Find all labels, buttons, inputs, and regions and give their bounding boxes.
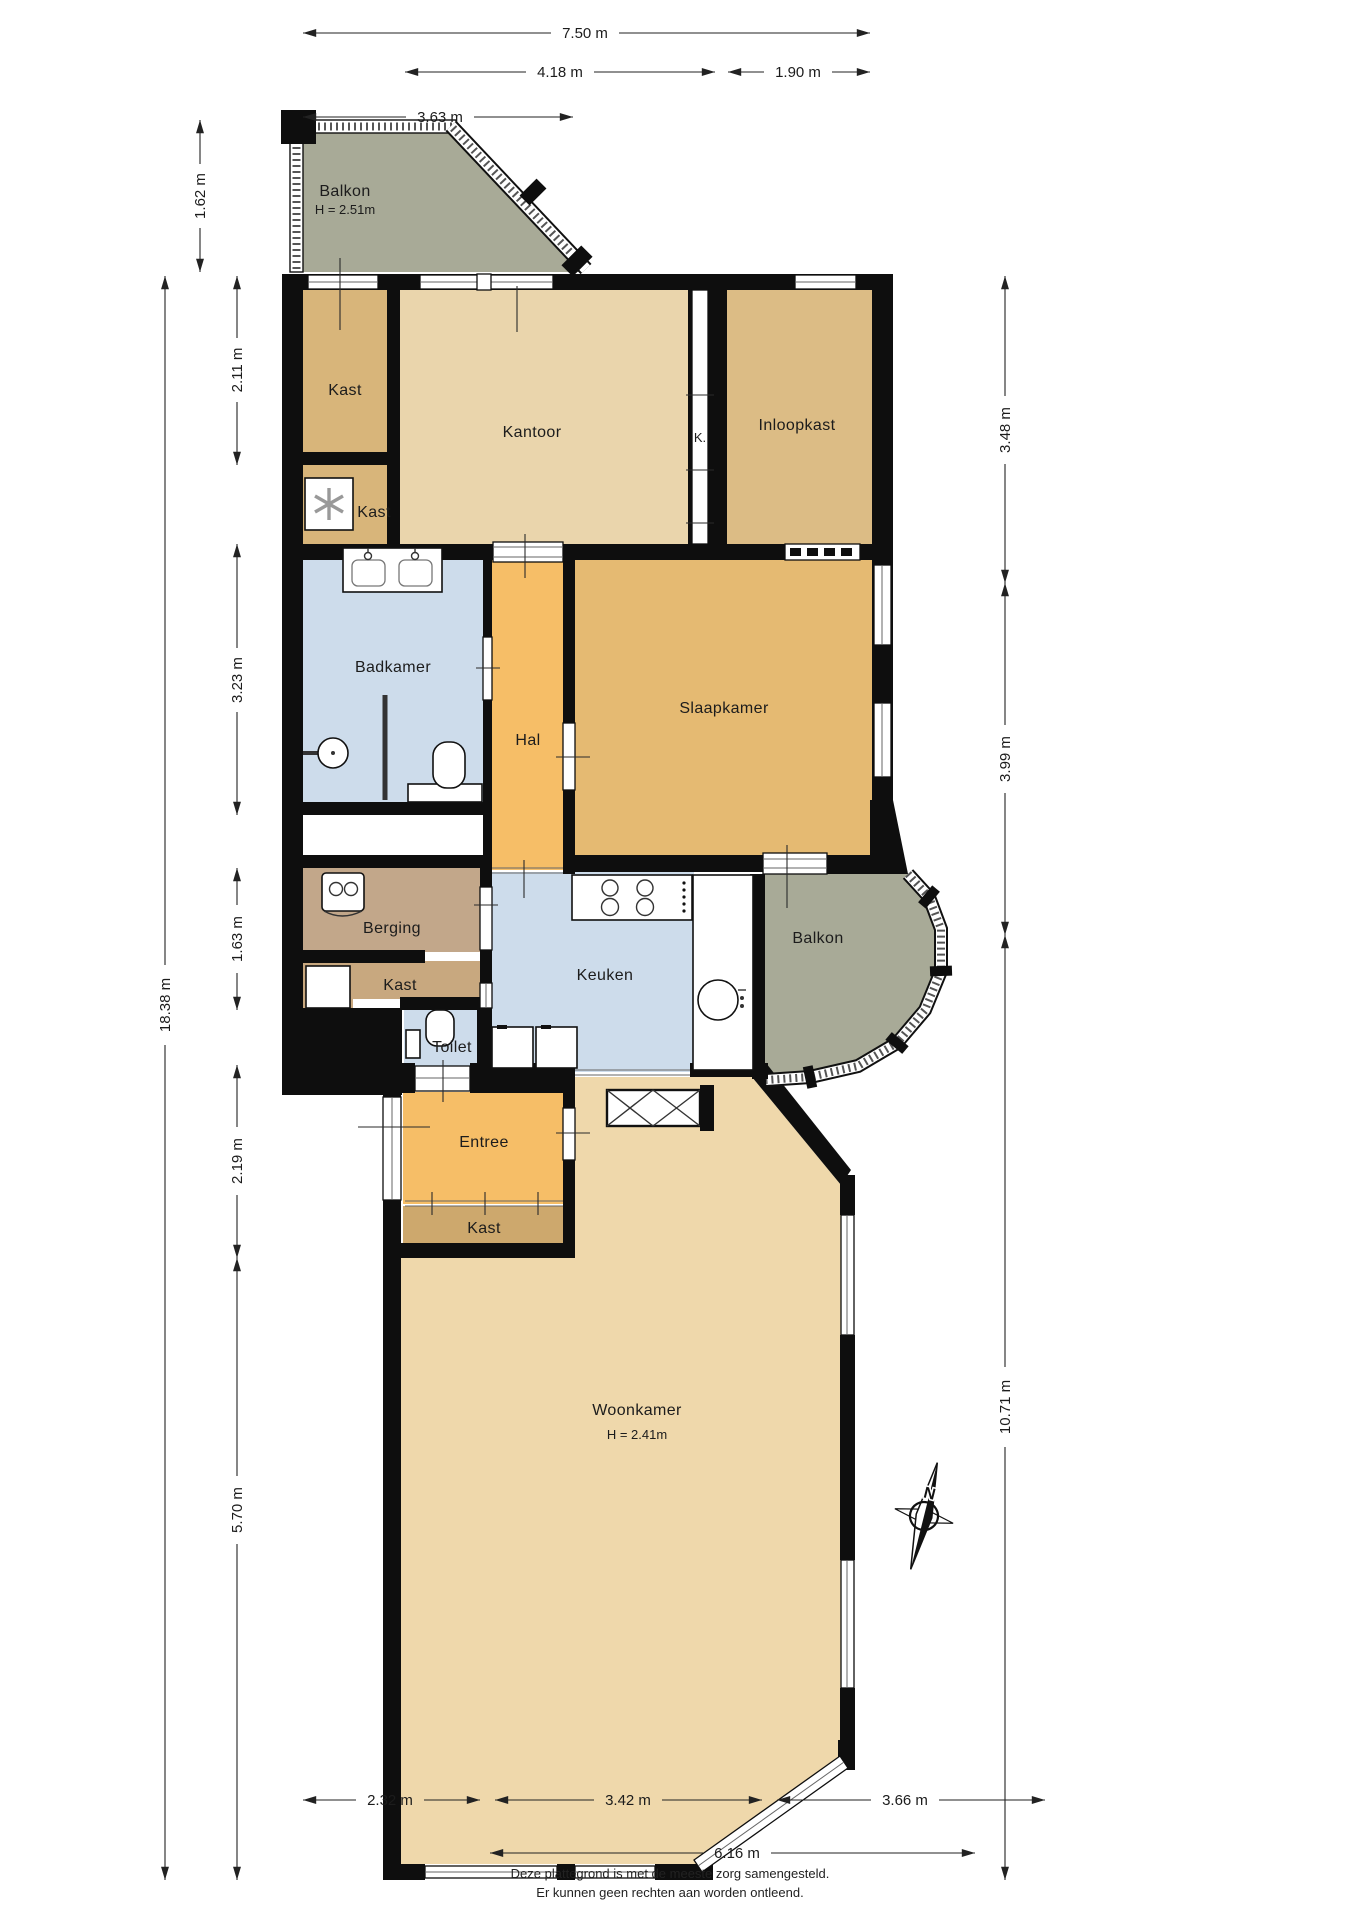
label-kast-1: Kast [328, 382, 362, 399]
label-kast-2: Kast [357, 504, 391, 521]
double-sink-icon [343, 548, 442, 592]
room-kantoor [395, 288, 693, 550]
label-berging: Berging [363, 920, 421, 937]
label-hal: Hal [515, 732, 540, 749]
svg-text:3.66 m: 3.66 m [882, 1792, 928, 1809]
label-badkamer: Badkamer [355, 659, 431, 676]
label-entree: Entree [459, 1134, 509, 1151]
label-inloopkast: Inloopkast [759, 417, 836, 434]
dim-left-s2: 2.11 m [229, 276, 246, 465]
dim-top-left-span: 4.18 m [405, 64, 715, 81]
stove-icon [572, 875, 692, 920]
dim-left-s5: 2.19 m [229, 1065, 246, 1258]
label-woonkamer-height: H = 2.41m [607, 1427, 667, 1442]
compass-label: N [922, 1485, 937, 1504]
dim-top-right-span: 1.90 m [728, 64, 870, 81]
floor-plan: Balkon H = 2.51m Kast Kantoor K. Inloopk… [0, 0, 1358, 1920]
floorplan-page: Balkon H = 2.51m Kast Kantoor K. Inloopk… [0, 0, 1358, 1920]
label-slaapkamer: Slaapkamer [679, 700, 769, 717]
svg-text:2.32 m: 2.32 m [367, 1792, 413, 1809]
svg-text:18.38 m: 18.38 m [157, 978, 174, 1032]
appliance-icon [536, 1027, 577, 1068]
appliance-icon [492, 1027, 533, 1068]
svg-text:4.18 m: 4.18 m [537, 64, 583, 81]
label-kantoor: Kantoor [503, 424, 562, 441]
svg-text:1.62 m: 1.62 m [192, 173, 209, 219]
dim-left-s1: 1.62 m [192, 120, 209, 272]
room-kast-1 [303, 288, 393, 458]
label-kast-4: Kast [467, 1220, 501, 1237]
label-k-strip: K. [694, 430, 706, 445]
dim-right-s3: 10.71 m [997, 935, 1014, 1880]
room-hal [490, 552, 565, 870]
svg-text:1.90 m: 1.90 m [775, 64, 821, 81]
dim-top-total: 7.50 m [303, 25, 870, 42]
svg-text:3.23 m: 3.23 m [229, 657, 246, 703]
svg-text:3.63 m: 3.63 m [417, 109, 463, 126]
svg-text:1.63 m: 1.63 m [229, 916, 246, 962]
dim-right-s2: 3.99 m [997, 583, 1014, 935]
boiler-icon [322, 873, 364, 916]
svg-text:3.99 m: 3.99 m [997, 736, 1014, 782]
svg-text:2.11 m: 2.11 m [229, 348, 246, 393]
svg-text:3.42 m: 3.42 m [605, 1792, 651, 1809]
svg-text:6.16 m: 6.16 m [714, 1845, 760, 1862]
svg-text:5.70 m: 5.70 m [229, 1487, 246, 1533]
svg-text:10.71 m: 10.71 m [997, 1380, 1014, 1434]
footer: Deze plattegrond is met de meeste zorg s… [511, 1866, 830, 1900]
room-balkon-right [765, 874, 941, 1080]
svg-text:2.19 m: 2.19 m [229, 1138, 246, 1184]
washer-icon [306, 966, 350, 1008]
label-keuken: Keuken [577, 967, 634, 984]
label-balkon-top-height: H = 2.51m [315, 202, 375, 217]
label-balkon-right: Balkon [792, 930, 843, 947]
footer-line-2: Er kunnen geen rechten aan worden ontlee… [536, 1885, 803, 1900]
shaft-icon [607, 1085, 714, 1131]
svg-text:3.48 m: 3.48 m [997, 407, 1014, 453]
kitchen-sink-icon [693, 875, 753, 1070]
dim-left-s3: 3.23 m [229, 544, 246, 815]
dim-left-total: 18.38 m [157, 276, 174, 1880]
room-closet-white [303, 813, 483, 857]
footer-line-1: Deze plattegrond is met de meeste zorg s… [511, 1866, 830, 1881]
label-balkon-top: Balkon [319, 183, 370, 200]
dim-left-s6: 5.70 m [229, 1258, 246, 1880]
label-toilet: Toilet [432, 1039, 472, 1056]
label-kast-3: Kast [383, 977, 417, 994]
svg-text:7.50 m: 7.50 m [562, 25, 608, 42]
compass-north-icon: N [882, 1455, 967, 1576]
dim-right-s1: 3.48 m [997, 276, 1014, 583]
dim-left-s4: 1.63 m [229, 868, 246, 1010]
label-woonkamer: Woonkamer [592, 1402, 682, 1419]
fan-icon [305, 478, 353, 530]
